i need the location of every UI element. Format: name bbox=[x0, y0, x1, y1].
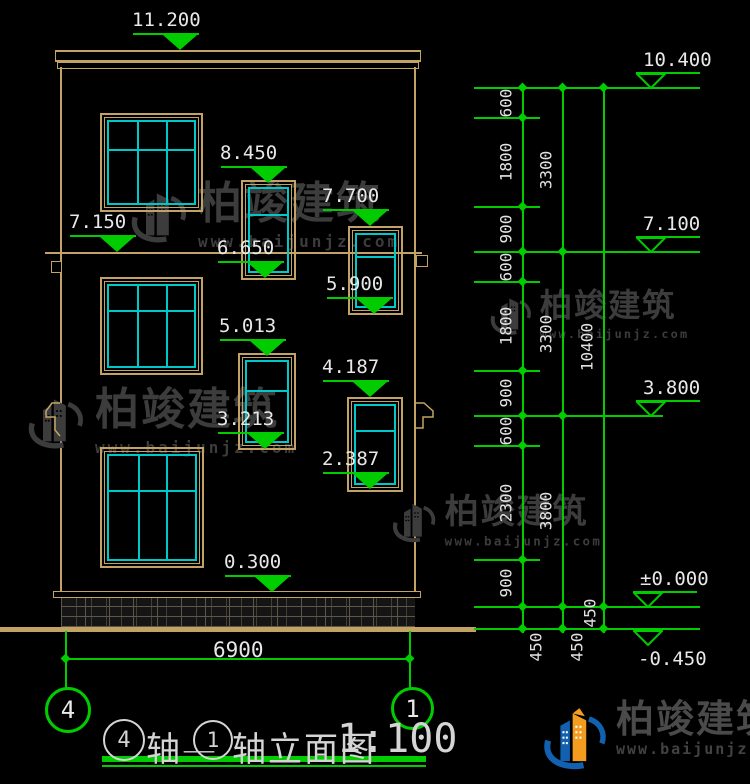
dimension-label: 1800 bbox=[497, 143, 516, 182]
level-label: 3.800 bbox=[643, 377, 700, 399]
dim-tick bbox=[558, 411, 568, 421]
level-label: 8.450 bbox=[220, 142, 277, 164]
window-mullion-vertical bbox=[138, 456, 140, 559]
window-mullion-horizontal bbox=[109, 310, 194, 312]
dimension-label: 450 bbox=[581, 599, 600, 628]
overall-width-dimension: 6900 bbox=[213, 638, 264, 662]
window-mullion-vertical bbox=[166, 122, 168, 203]
level-marker-triangle bbox=[251, 168, 285, 183]
dim-tick bbox=[518, 83, 528, 93]
dim-tick bbox=[518, 555, 528, 565]
base-band bbox=[53, 591, 421, 598]
stone-base bbox=[61, 598, 415, 627]
window-mullion-vertical bbox=[137, 122, 139, 203]
level-label: 0.300 bbox=[224, 551, 281, 573]
window-mullion-horizontal bbox=[247, 390, 287, 392]
level-label: 4.187 bbox=[322, 356, 379, 378]
dim-chain-line bbox=[603, 88, 605, 633]
brand-url: www.baijunjz.com bbox=[616, 740, 750, 758]
dim-tick bbox=[518, 411, 528, 421]
dim-extension-line bbox=[474, 370, 540, 372]
dim-tick bbox=[518, 247, 528, 257]
dim-tick bbox=[518, 602, 528, 612]
level-label: ±0.000 bbox=[640, 568, 709, 590]
dimension-label: 2300 bbox=[497, 484, 516, 523]
watermark-logo-icon bbox=[25, 388, 85, 454]
level-marker-triangle bbox=[353, 474, 387, 489]
level-marker-triangle bbox=[353, 211, 387, 226]
roof-band-lower bbox=[57, 62, 419, 69]
level-marker-triangle bbox=[633, 592, 663, 612]
dim-extension-line bbox=[474, 206, 540, 208]
window bbox=[100, 113, 203, 212]
level-label: 11.200 bbox=[132, 9, 201, 31]
level-marker-triangle bbox=[163, 35, 197, 50]
axis-bubble-4-label: 4 bbox=[61, 696, 75, 724]
axis-bubble-4: 4 bbox=[45, 687, 91, 733]
dim-chain-line bbox=[562, 88, 564, 633]
level-label: 5.013 bbox=[219, 315, 276, 337]
brand-logo-icon bbox=[540, 700, 608, 776]
window-mullion-horizontal bbox=[109, 149, 194, 151]
dimension-label: 900 bbox=[497, 379, 516, 408]
dimension-label: 900 bbox=[497, 569, 516, 598]
title-axis-end: 1 bbox=[207, 728, 220, 752]
dim-tick bbox=[405, 654, 415, 664]
window-glass-frame bbox=[107, 284, 196, 368]
ground-line bbox=[0, 627, 476, 632]
dimension-label: 10400 bbox=[578, 323, 597, 371]
dim-extension-line bbox=[474, 628, 700, 630]
window-mullion-horizontal bbox=[109, 490, 195, 492]
level-label: 5.900 bbox=[326, 273, 383, 295]
level-marker-triangle bbox=[100, 237, 134, 252]
dimension-label: 1800 bbox=[497, 307, 516, 346]
dim-tick bbox=[558, 83, 568, 93]
window-mullion-horizontal bbox=[357, 256, 394, 258]
level-marker-triangle bbox=[636, 237, 666, 257]
dimension-label: 450 bbox=[527, 633, 546, 662]
dim-chain-line bbox=[522, 88, 524, 633]
dimension-label: 600 bbox=[497, 253, 516, 282]
window-mullion-horizontal bbox=[250, 214, 287, 216]
dim-extension-line bbox=[474, 559, 540, 561]
level-marker-triangle bbox=[357, 299, 391, 314]
dimension-label: 450 bbox=[568, 633, 587, 662]
window-mullion-vertical bbox=[166, 456, 168, 559]
window-mullion-vertical bbox=[166, 286, 168, 366]
level-marker-triangle bbox=[633, 630, 663, 650]
dim-tick bbox=[518, 113, 528, 123]
dimension-label: 900 bbox=[497, 215, 516, 244]
window-glass-frame bbox=[245, 360, 289, 443]
window-glass-frame bbox=[107, 120, 196, 205]
dimension-label: 3800 bbox=[537, 492, 556, 531]
title-axis-end-circle: 1 bbox=[193, 720, 233, 760]
roof-band-upper bbox=[55, 50, 421, 62]
level-label: -0.450 bbox=[638, 648, 707, 670]
dim-tick bbox=[599, 602, 609, 612]
cad-elevation-drawing: 6900 4 1 4 轴— 1 轴立面图 1:100 bbox=[0, 0, 750, 784]
dim-tick bbox=[558, 247, 568, 257]
brand-logo-block: 柏竣建筑 www.baijunjz.com bbox=[540, 700, 750, 776]
level-label: 2.387 bbox=[322, 448, 379, 470]
title-axis-start-circle: 4 bbox=[103, 719, 145, 761]
dim-tick bbox=[558, 602, 568, 612]
level-label: 7.150 bbox=[69, 211, 126, 233]
window-glass-frame bbox=[107, 454, 197, 561]
level-label: 3.213 bbox=[217, 408, 274, 430]
dimension-label: 600 bbox=[497, 417, 516, 446]
wall-notch-right bbox=[416, 255, 428, 267]
brand-name: 柏竣建筑 bbox=[616, 700, 750, 740]
wall-notch-left bbox=[51, 261, 62, 273]
dim-tick bbox=[518, 202, 528, 212]
dim-tick bbox=[599, 624, 609, 634]
window-mullion-vertical bbox=[137, 286, 139, 366]
level-marker-triangle bbox=[250, 341, 284, 356]
dimension-label: 3300 bbox=[537, 315, 556, 354]
level-marker-triangle bbox=[248, 434, 282, 449]
window bbox=[100, 277, 203, 375]
watermark-logo-icon bbox=[390, 495, 437, 546]
dimension-label: 3300 bbox=[537, 151, 556, 190]
wall-left bbox=[60, 67, 62, 592]
window-mullion-horizontal bbox=[356, 430, 394, 432]
drawing-scale: 1:100 bbox=[337, 716, 457, 762]
level-marker-triangle bbox=[353, 382, 387, 397]
level-label: 7.100 bbox=[643, 213, 700, 235]
title-axis-start: 4 bbox=[117, 728, 130, 753]
dim-tick bbox=[518, 366, 528, 376]
dimension-label: 600 bbox=[497, 89, 516, 118]
level-marker-triangle bbox=[248, 263, 282, 278]
level-marker-triangle bbox=[636, 73, 666, 93]
dim-tick bbox=[518, 277, 528, 287]
window bbox=[100, 447, 204, 568]
dim-tick bbox=[599, 83, 609, 93]
dim-tick bbox=[61, 654, 71, 664]
level-label: 10.400 bbox=[643, 49, 712, 71]
level-label: 7.700 bbox=[322, 185, 379, 207]
level-marker-triangle bbox=[636, 401, 666, 421]
dim-tick bbox=[558, 624, 568, 634]
dim-tick bbox=[518, 441, 528, 451]
level-label: 6.650 bbox=[217, 237, 274, 259]
level-marker-triangle bbox=[255, 577, 289, 592]
